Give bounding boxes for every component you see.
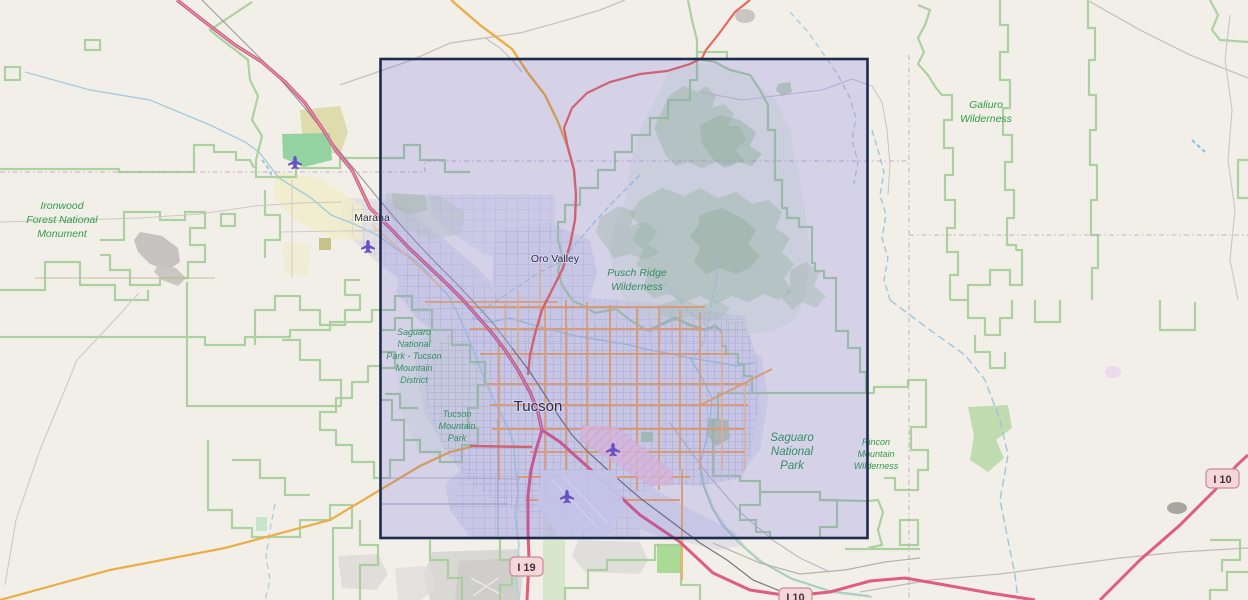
svg-text:Ironwood: Ironwood	[40, 200, 84, 212]
svg-text:I 10: I 10	[1213, 474, 1231, 486]
svg-text:Galiuro: Galiuro	[969, 99, 1003, 111]
svg-text:Monument: Monument	[37, 228, 88, 240]
svg-text:I 10: I 10	[786, 592, 804, 600]
svg-text:I 19: I 19	[517, 562, 535, 574]
svg-text:Wilderness: Wilderness	[960, 113, 1013, 125]
svg-text:Forest National: Forest National	[26, 214, 98, 226]
